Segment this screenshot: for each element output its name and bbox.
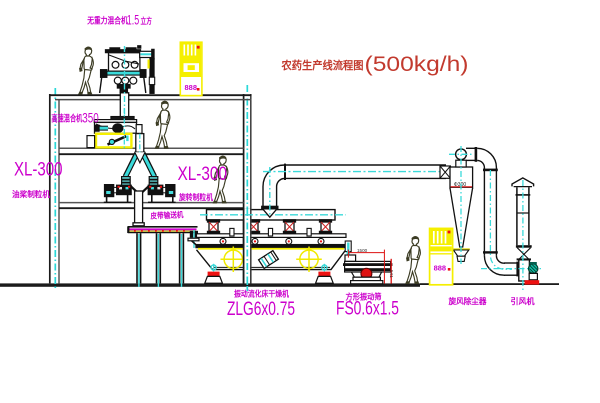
- svg-text:皮带输送机: 皮带输送机: [149, 209, 183, 220]
- svg-text:(500kg/h): (500kg/h): [365, 52, 469, 76]
- svg-text:立方: 立方: [141, 16, 153, 26]
- svg-text:XL-300: XL-300: [14, 159, 63, 181]
- svg-text:Φ300: Φ300: [454, 182, 467, 188]
- svg-text:FS0.6x1.5: FS0.6x1.5: [336, 298, 399, 319]
- svg-text:ZLG6x0.75: ZLG6x0.75: [227, 299, 295, 320]
- svg-text:888: 888: [434, 264, 447, 273]
- svg-text:旋转制粒机: 旋转制粒机: [178, 192, 213, 202]
- svg-text:引风机: 引风机: [511, 296, 536, 306]
- svg-text:1.5: 1.5: [127, 12, 140, 28]
- svg-text:XL-300: XL-300: [178, 163, 228, 185]
- svg-text:高速混合机: 高速混合机: [51, 113, 82, 124]
- svg-text:888: 888: [185, 83, 198, 92]
- svg-text:旋风除尘器: 旋风除尘器: [448, 296, 488, 306]
- svg-text:1500: 1500: [357, 248, 368, 253]
- svg-text:无重力混合机: 无重力混合机: [87, 15, 128, 26]
- svg-text:541: 541: [389, 270, 394, 278]
- svg-text:振动流化床干燥机: 振动流化床干燥机: [234, 289, 289, 299]
- svg-text:农药生产线流程图: 农药生产线流程图: [281, 59, 364, 72]
- svg-text:油桨制粒机: 油桨制粒机: [12, 189, 50, 199]
- svg-text:350: 350: [82, 110, 99, 125]
